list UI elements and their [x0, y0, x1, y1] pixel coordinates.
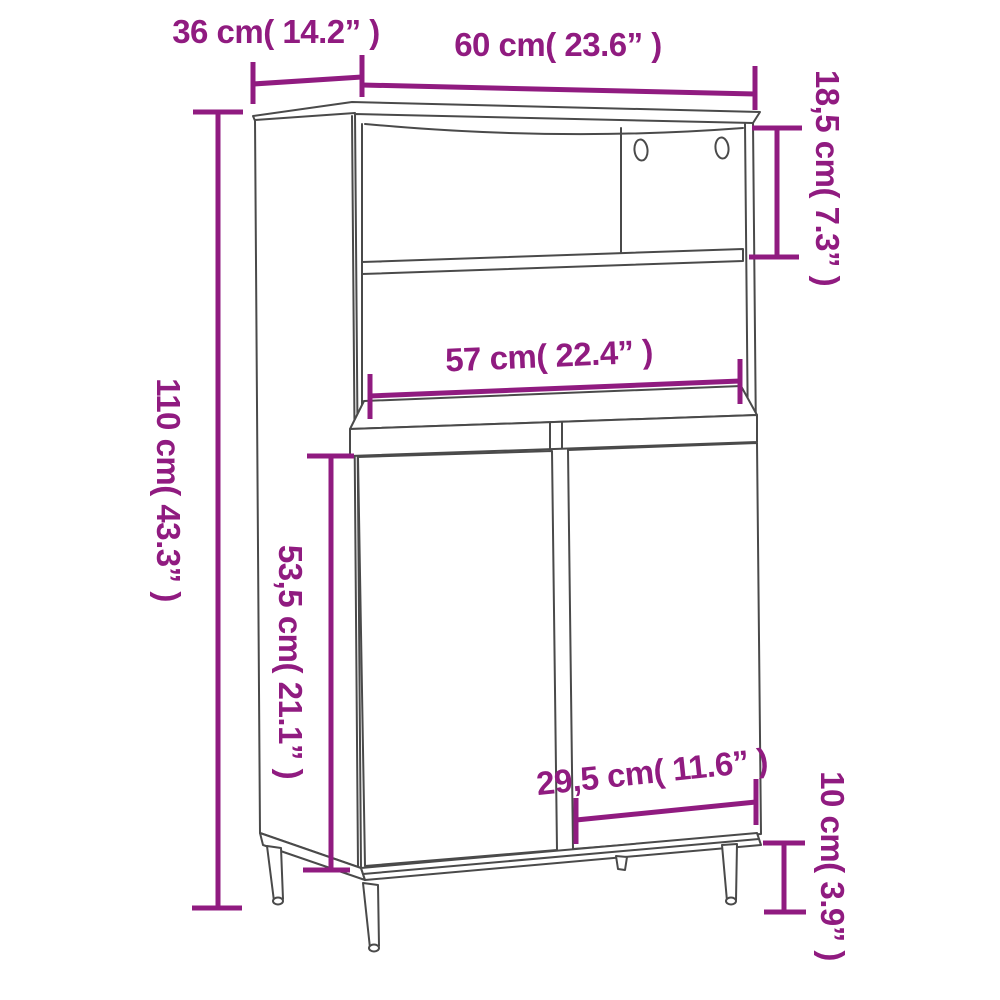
- leg-front-left-foot: [369, 945, 379, 952]
- dim-label-top-compartment-height: 18,5 cm( 7.3” ): [808, 70, 846, 286]
- dim-label-total-height: 110 cm( 43.3” ): [149, 378, 187, 602]
- middle-shelf: [362, 249, 743, 274]
- leg-front-right: [722, 844, 737, 901]
- leg-front-right-foot: [726, 898, 736, 905]
- right-panel-outer-edge: [753, 123, 756, 441]
- dim-line-top-compartment-height: [749, 128, 802, 257]
- screw-hole-left: [633, 139, 648, 161]
- leg-back-left-foot: [273, 898, 283, 905]
- dim-label-width: 60 cm( 23.6” ): [454, 26, 662, 64]
- dim-line-leg-height: [763, 843, 806, 912]
- leg-back-left: [267, 846, 283, 901]
- dimension-diagram: 36 cm( 14.2” ) 60 cm( 23.6” ) 18,5 cm( 7…: [0, 0, 1000, 1000]
- leg-front-left: [363, 883, 379, 948]
- dim-label-door-height: 53,5 cm( 21.1” ): [271, 545, 309, 779]
- dim-line-depth: [253, 55, 362, 104]
- leg-back-middle: [616, 856, 627, 870]
- screw-hole-right: [714, 137, 729, 159]
- left-door: [358, 451, 557, 866]
- dim-line-total-height: [192, 112, 243, 908]
- dim-label-leg-height: 10 cm( 3.9” ): [813, 771, 851, 961]
- dim-label-depth: 36 cm( 14.2” ): [172, 13, 380, 51]
- top-underside-edge: [365, 124, 743, 134]
